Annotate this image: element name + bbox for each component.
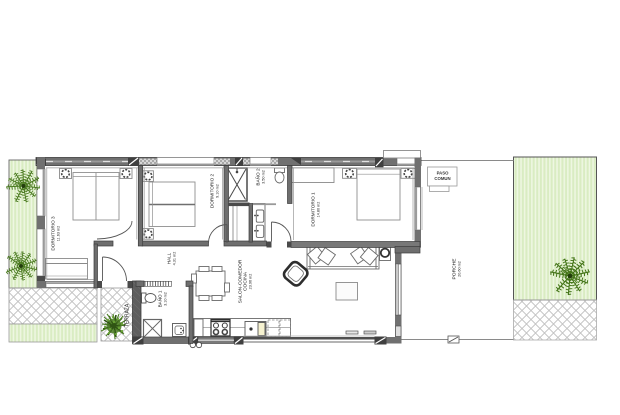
- svg-text:3.10 m2: 3.10 m2: [164, 292, 168, 306]
- svg-text:DORMITORIO 1: DORMITORIO 1: [311, 192, 316, 227]
- svg-text:DORMITORIO 2: DORMITORIO 2: [210, 173, 215, 208]
- svg-text:23.96 m2: 23.96 m2: [249, 274, 253, 290]
- svg-text:4.31 m2: 4.31 m2: [173, 252, 177, 266]
- svg-text:11.63 m2: 11.63 m2: [57, 226, 61, 242]
- svg-text:TERRAZA: TERRAZA: [125, 303, 131, 327]
- svg-text:BAÑO 1: BAÑO 1: [157, 290, 163, 307]
- svg-text:20.60 m2: 20.60 m2: [458, 261, 462, 277]
- svg-text:COMUN: COMUN: [434, 176, 450, 181]
- svg-text:PASO: PASO: [437, 171, 450, 176]
- svg-text:14.80 m2: 14.80 m2: [317, 202, 321, 218]
- svg-text:HALL: HALL: [167, 252, 172, 264]
- svg-text:BAÑO 2: BAÑO 2: [255, 168, 261, 186]
- svg-text:9.10 m2: 9.10 m2: [216, 184, 220, 198]
- svg-text:3.50 m2: 3.50 m2: [262, 170, 266, 184]
- svg-text:DORMITORIO 3: DORMITORIO 3: [51, 216, 56, 251]
